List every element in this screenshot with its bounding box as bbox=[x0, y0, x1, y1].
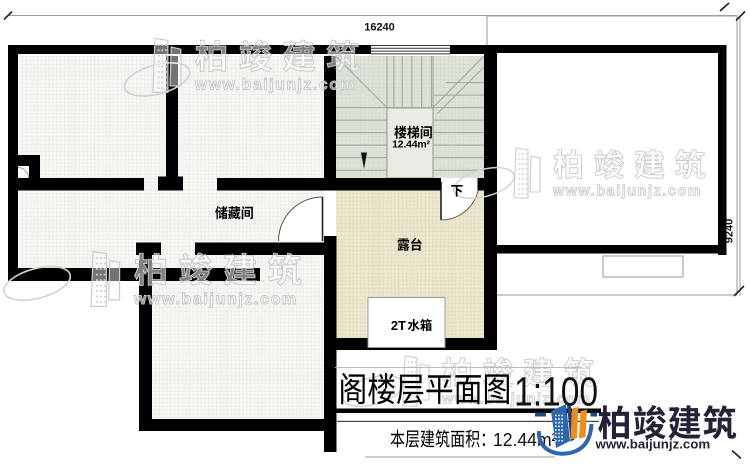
svg-text:www.baijunjz.com: www.baijunjz.com bbox=[595, 437, 711, 452]
svg-text:1:100: 1:100 bbox=[514, 368, 598, 414]
svg-text:9240: 9240 bbox=[724, 219, 736, 243]
svg-text:2T: 2T bbox=[391, 318, 406, 333]
svg-text:16240: 16240 bbox=[364, 22, 395, 34]
svg-text:12.44m²: 12.44m² bbox=[392, 139, 430, 151]
svg-text:www.baijunjz.com: www.baijunjz.com bbox=[194, 77, 356, 94]
svg-text:www.baijunjz.com: www.baijunjz.com bbox=[552, 184, 702, 200]
svg-text:12.44m²: 12.44m² bbox=[493, 430, 557, 451]
svg-text:www.baijunjz.com: www.baijunjz.com bbox=[133, 291, 298, 308]
